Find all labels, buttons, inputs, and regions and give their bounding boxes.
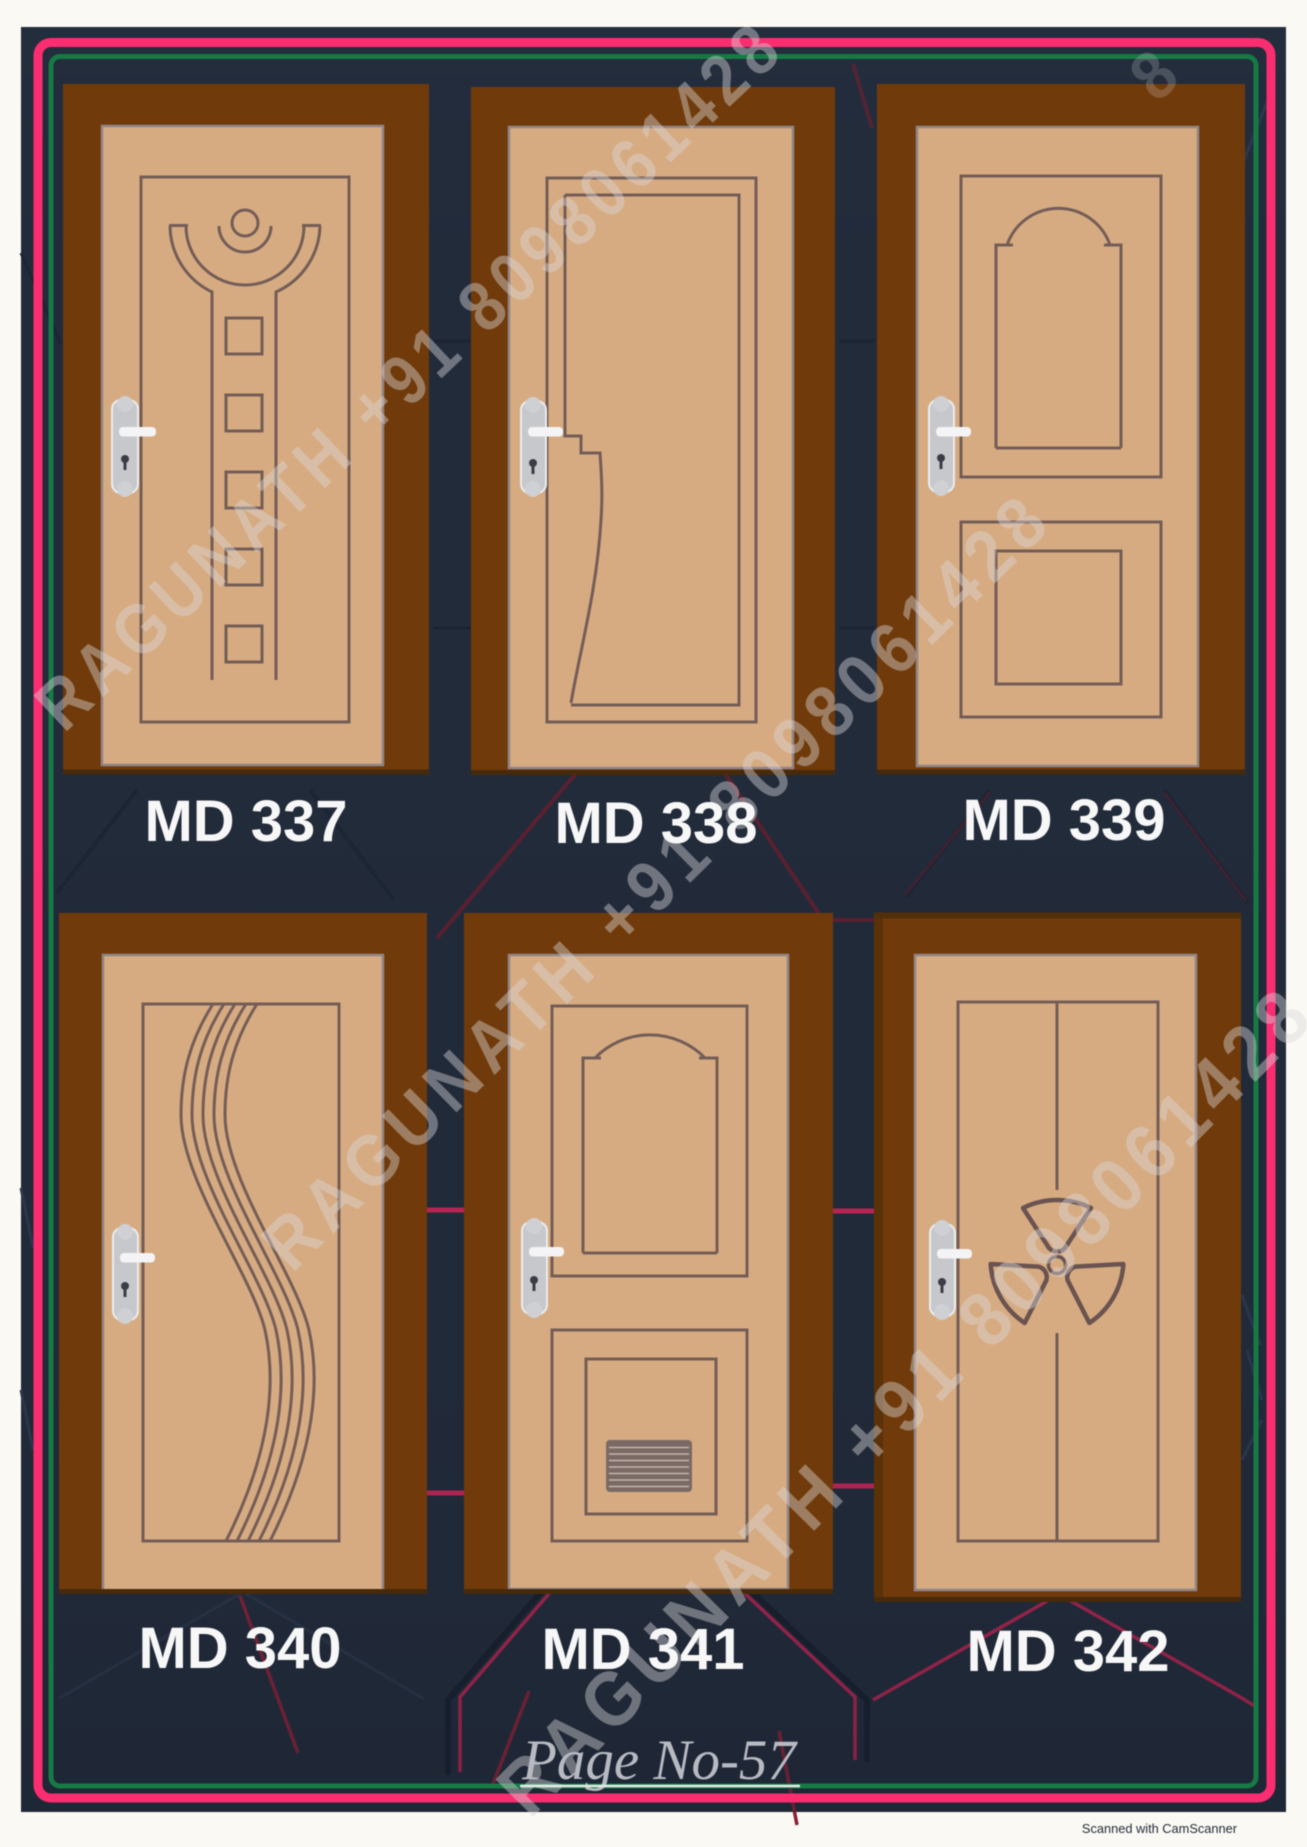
- svg-text:MD 342: MD 342: [966, 1619, 1169, 1684]
- svg-text:Page No-57: Page No-57: [521, 1729, 798, 1792]
- svg-text:MD 340: MD 340: [138, 1616, 341, 1681]
- svg-text:MD 341: MD 341: [541, 1617, 744, 1682]
- svg-text:MD 337: MD 337: [144, 789, 347, 854]
- svg-text:MD 339: MD 339: [962, 788, 1165, 853]
- svg-text:Scanned with CamScanner: Scanned with CamScanner: [1082, 1821, 1238, 1836]
- svg-text:MD 338: MD 338: [554, 791, 757, 856]
